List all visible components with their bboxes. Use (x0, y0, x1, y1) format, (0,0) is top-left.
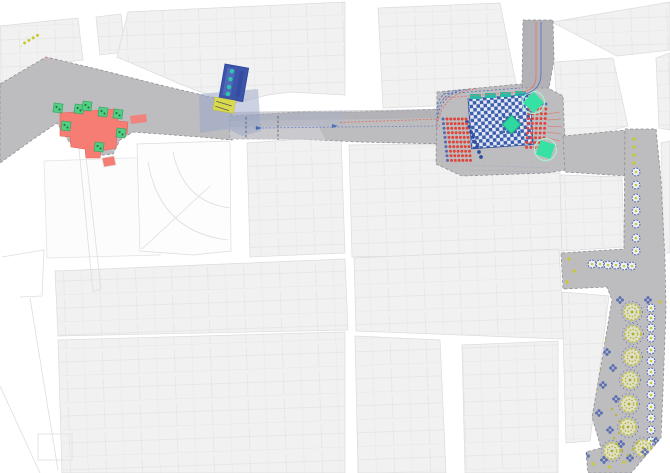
parcel-lines (247, 136, 345, 257)
parcel-lines (462, 341, 558, 473)
red-building-annex (102, 156, 116, 167)
north-exit-street (522, 20, 554, 88)
parcel-lines (554, 58, 628, 138)
dotrow (0, 0, 14, 20)
parcel-outline (2, 250, 44, 297)
dotrow (9, 0, 30, 4)
parcel-lines (656, 53, 670, 130)
teal-bench (470, 94, 481, 99)
map-root (0, 0, 670, 473)
masterplan-canvas (0, 0, 670, 473)
parcel-lines (355, 336, 446, 473)
parcel-outline (30, 298, 58, 470)
masterplan-svg (0, 0, 670, 473)
parcel-lines (552, 2, 670, 56)
parcel-outline (0, 386, 40, 473)
dotrow (5, 17, 22, 23)
parcel-lines (58, 332, 345, 473)
parcel-lines (560, 175, 624, 251)
dotrow (0, 0, 17, 25)
parcel-lines (354, 249, 564, 339)
dotrow (0, 0, 12, 16)
